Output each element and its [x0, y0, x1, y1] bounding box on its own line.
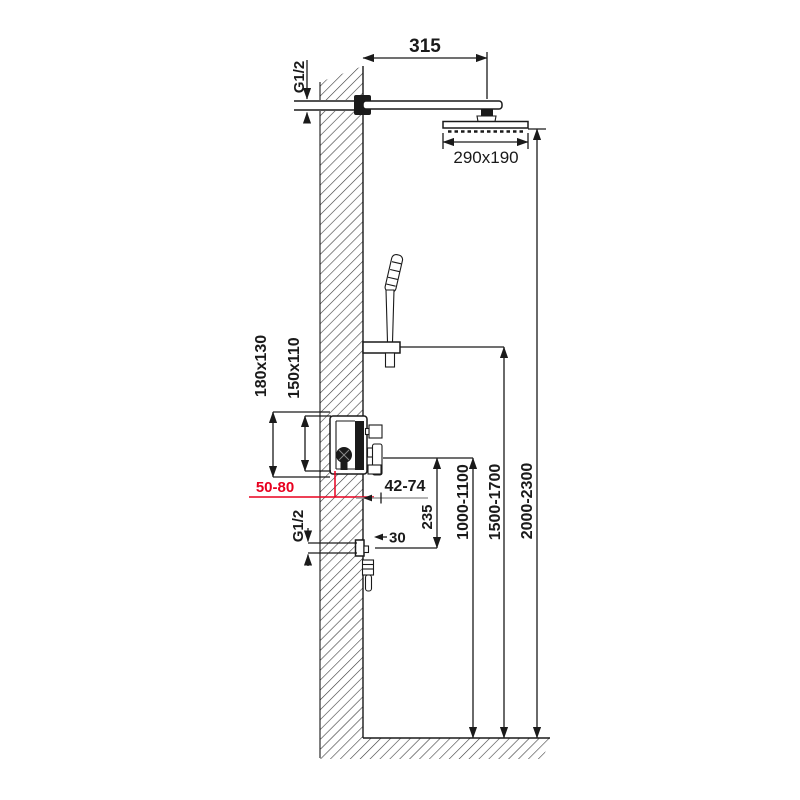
valve-body-bar: [355, 421, 364, 470]
dim-head-height: 2000-2300: [519, 129, 546, 738]
dim-head-size-label: 290x190: [453, 148, 518, 167]
dim-head-size: 290x190: [443, 133, 528, 167]
hand-shower-head: [384, 254, 403, 294]
hand-shower-holder: [363, 342, 400, 367]
hand-shower: [384, 254, 403, 342]
dim-box-cutout-label: 150x110: [286, 337, 303, 399]
dim-arm-length-label: 315: [409, 36, 441, 57]
mixer-box: [330, 416, 367, 474]
diverter-button: [366, 425, 383, 438]
dim-head-height-label: 2000-2300: [519, 463, 536, 540]
dim-outlet-projection-label: 30: [389, 530, 406, 547]
inlet-pipe: [294, 100, 363, 111]
dim-outlet-projection: 30: [374, 530, 406, 547]
floor-section: [320, 738, 550, 759]
dim-outlet-thread-label: G1/2: [290, 510, 307, 543]
installation-diagram: 315 G1/2 290x190: [0, 0, 800, 800]
hose-connector: [363, 560, 374, 591]
dim-inlet-thread: G1/2: [291, 60, 308, 122]
water-outlet: [356, 540, 369, 556]
dim-outlet-offset-label: 235: [419, 504, 436, 529]
dim-trim-depth-label: 42-74: [385, 478, 426, 495]
dim-mixer-height: 1000-1100: [455, 458, 473, 738]
dim-handshower-height-label: 1500-1700: [487, 464, 504, 541]
dim-trim-depth: 42-74: [356, 478, 428, 504]
diagram-canvas: 315 G1/2 290x190: [0, 0, 800, 800]
shower-arm: [363, 101, 502, 109]
dim-handshower-height: 1500-1700: [400, 347, 504, 738]
dim-arm-length: 315: [363, 36, 487, 99]
dim-inlet-thread-label: G1/2: [291, 61, 308, 94]
overhead-shower-head: [443, 122, 528, 132]
dim-mixer-height-label: 1000-1100: [455, 464, 472, 540]
dim-embed-depth-label: 50-80: [256, 479, 294, 496]
dim-box-outer-label: 180x130: [253, 335, 270, 397]
valve-trim-handle: [368, 444, 383, 475]
hand-shower-handle: [386, 290, 394, 342]
